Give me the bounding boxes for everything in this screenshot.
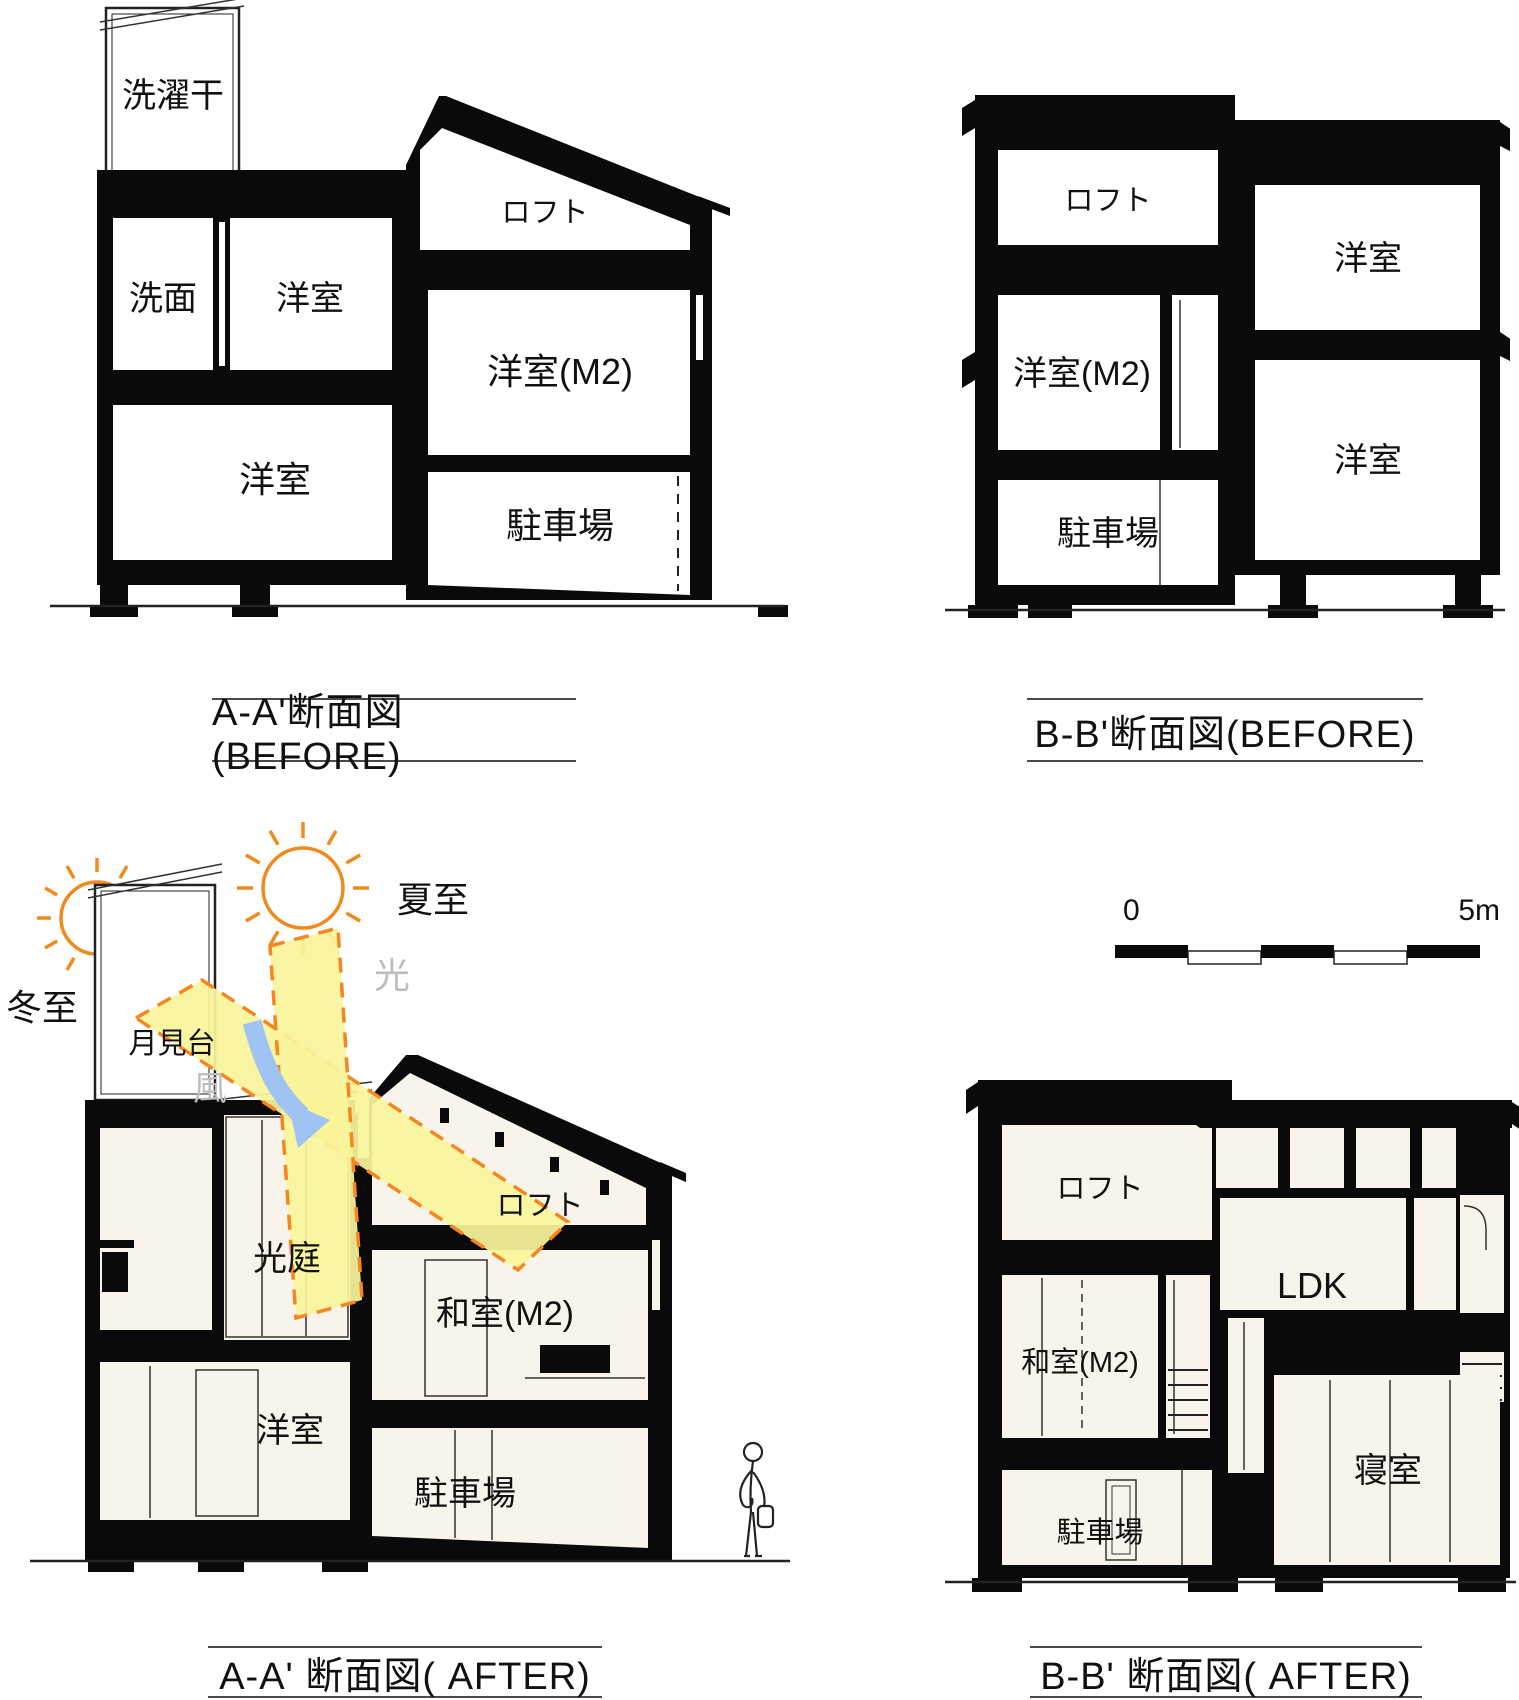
aa-before-section-drawing: 洗濯干 洗面 洋室 ロフト 洋室(M2) 洋室 駐車場 <box>40 0 800 690</box>
room-label-loft: ロフト <box>501 197 588 229</box>
room-label-parking: 駐車場 <box>414 1475 516 1513</box>
caption-bb-before: B-B'断面図(BEFORE) <box>1027 698 1423 762</box>
bb-after-panel: 0 5m <box>860 770 1519 1650</box>
room-label-parking: 駐車場 <box>1057 515 1159 553</box>
caption-aa-after: A-A' 断面図( AFTER) <box>208 1646 602 1698</box>
aa-before-panel: 洗濯干 洗面 洋室 ロフト 洋室(M2) 洋室 駐車場 <box>40 0 800 690</box>
room-label-western-room-m2: 洋室(M2) <box>487 351 633 392</box>
room-label-western-room-1f: 洋室 <box>256 1412 324 1450</box>
room-label-western-room-1f: 洋室 <box>239 459 311 500</box>
room-label-bedroom: 寝室 <box>1354 1452 1422 1490</box>
summer-sun-icon <box>237 822 369 954</box>
room-label-washroom: 洗面 <box>129 280 197 318</box>
room-label-western-room-1f: 洋室 <box>1334 442 1402 480</box>
room-label-laundry-deck: 洗濯干 <box>122 77 224 115</box>
room-label-japanese-room-m2: 和室(M2) <box>436 1295 574 1333</box>
bb-before-section-drawing: ロフト 洋室(M2) 駐車場 洋室 洋室 <box>850 0 1510 690</box>
bb-after-right-tower <box>1192 1100 1519 1592</box>
tv-icon <box>540 1345 610 1373</box>
scale-bar: 0 5m <box>1115 894 1500 964</box>
room-label-loft: ロフト <box>1064 185 1151 217</box>
caption-aa-before: A-A'断面図(BEFORE) <box>212 698 576 762</box>
winter-solstice-label: 冬至 <box>6 987 78 1028</box>
wind-label: 風 <box>193 1070 227 1108</box>
scale-end-label: 5m <box>1458 894 1500 927</box>
scale-start-label: 0 <box>1123 894 1140 927</box>
room-label-western-room-2f: 洋室 <box>276 280 344 318</box>
bb-before-right-tower <box>1235 120 1510 618</box>
room-label-parking: 駐車場 <box>506 505 614 546</box>
sectional-drawings-sheet: 洗濯干 洗面 洋室 ロフト 洋室(M2) 洋室 駐車場 A-A'断面図(BEFO… <box>0 0 1519 1700</box>
light-court-label: 光庭 <box>253 1240 321 1278</box>
aa-after-panel: 夏至 冬至 光 風 月見台 光庭 ロフト 和室(M2) 洋室 駐車場 <box>0 770 800 1650</box>
room-label-ldk: LDK <box>1277 1265 1347 1306</box>
light-label: 光 <box>374 955 410 996</box>
room-label-loft: ロフト <box>1056 1173 1143 1205</box>
summer-solstice-label: 夏至 <box>397 879 469 920</box>
bb-before-panel: ロフト 洋室(M2) 駐車場 洋室 洋室 <box>850 0 1510 690</box>
aa-after-section-drawing: 夏至 冬至 光 風 月見台 光庭 ロフト 和室(M2) 洋室 駐車場 <box>0 770 800 1650</box>
person-figure <box>740 1443 773 1556</box>
bb-after-left-tower <box>966 1080 1238 1592</box>
room-label-western-room-2f: 洋室 <box>1334 240 1402 278</box>
room-label-western-room-m2: 洋室(M2) <box>1013 355 1151 393</box>
caption-bb-after: B-B' 断面図( AFTER) <box>1030 1646 1422 1698</box>
room-label-japanese-room-m2: 和室(M2) <box>1021 1346 1139 1379</box>
room-label-loft: ロフト <box>496 1190 583 1222</box>
room-label-parking: 駐車場 <box>1056 1516 1143 1549</box>
bb-after-section-drawing: 0 5m <box>860 770 1519 1650</box>
moon-deck-label: 月見台 <box>128 1027 215 1060</box>
aa-before-left-block <box>90 170 406 617</box>
